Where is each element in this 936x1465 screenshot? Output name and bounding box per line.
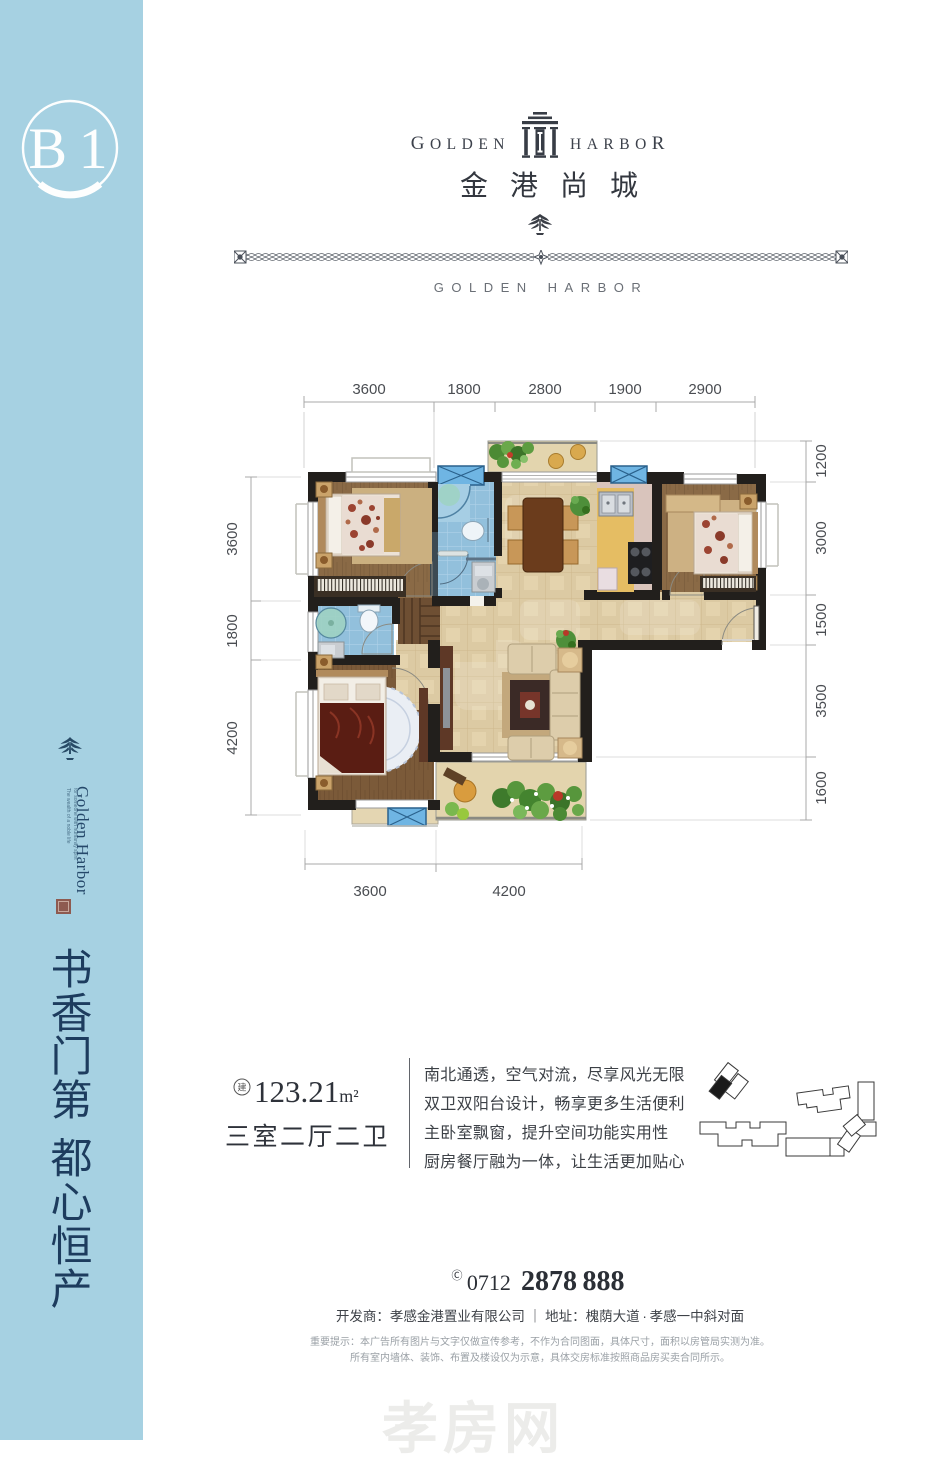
svg-text:3000: 3000 [813,521,830,554]
svg-text:2800: 2800 [528,381,561,398]
svg-text:1800: 1800 [224,614,241,647]
svg-text:3600: 3600 [224,522,241,555]
svg-text:1600: 1600 [813,771,830,804]
svg-text:建: 建 [237,1082,246,1093]
svg-text:3600: 3600 [352,381,385,398]
svg-text:3500: 3500 [813,684,830,717]
svg-text:1500: 1500 [813,603,830,636]
svg-text:1800: 1800 [447,381,480,398]
svg-text:1200: 1200 [813,444,830,477]
svg-text:3600: 3600 [353,883,386,900]
svg-text:4200: 4200 [224,721,241,754]
svg-text:2900: 2900 [688,381,721,398]
svg-text:1900: 1900 [608,381,641,398]
svg-text:4200: 4200 [492,883,525,900]
